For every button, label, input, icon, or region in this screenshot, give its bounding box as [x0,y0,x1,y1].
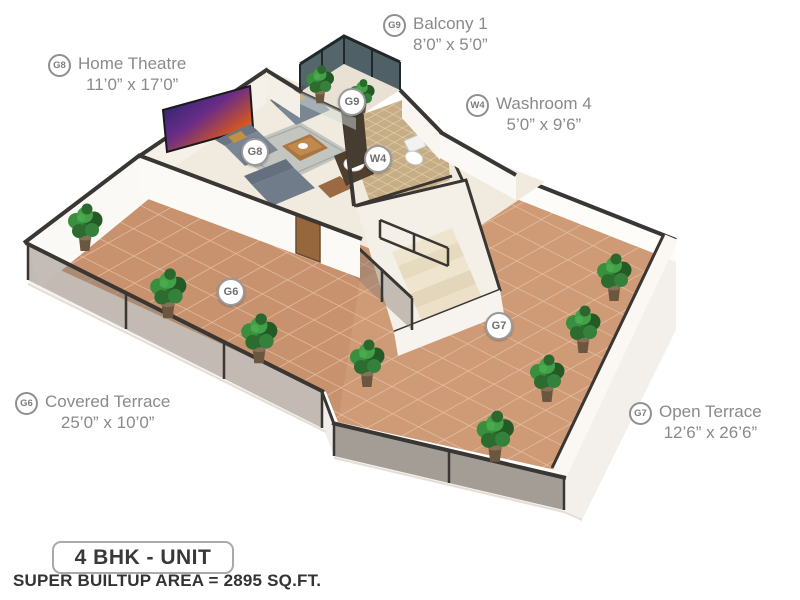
room-name: Open Terrace [659,401,762,422]
room-name: Covered Terrace [45,391,170,412]
label-covered-terrace: G6 Covered Terrace 25’0” x 10’0” [15,391,170,433]
room-name: Home Theatre [78,53,186,74]
room-dims: 8’0” x 5’0” [413,34,488,55]
label-washroom: W4 Washroom 4 5’0” x 9’6” [466,93,592,135]
plan-marker-balcony: G9 [338,88,366,116]
room-marker-badge: G7 [629,402,652,425]
plan-marker-washroom: W4 [364,145,392,173]
label-balcony: G9 Balcony 1 8’0” x 5’0” [383,13,488,55]
room-dims: 11’0” x 17’0” [86,74,178,95]
room-dims: 12’6” x 26’6” [664,422,758,443]
room-marker-badge: W4 [466,94,489,117]
plan-marker-covered-terrace: G6 [217,278,245,306]
label-open-terrace: G7 Open Terrace 12’6” x 26’6” [629,401,762,443]
room-dims: 25’0” x 10’0” [61,412,155,433]
room-marker-badge: G9 [383,14,406,37]
floorplan-canvas: G9 G8 W4 G6 G7 G8 Home Theatre 11’0” x 1… [0,0,800,600]
room-marker-badge: G6 [15,392,38,415]
room-name: Washroom 4 [496,93,592,114]
room-name: Balcony 1 [413,13,488,34]
builtup-area-text: SUPER BUILTUP AREA = 2895 SQ.FT. [13,571,321,591]
plan-marker-open-terrace: G7 [485,312,513,340]
plan-marker-home-theatre: G8 [241,138,269,166]
room-marker-badge: G8 [48,54,71,77]
label-home-theatre: G8 Home Theatre 11’0” x 17’0” [48,53,186,95]
unit-type-badge: 4 BHK - UNIT [52,541,234,574]
room-dims: 5’0” x 9’6” [507,114,582,135]
